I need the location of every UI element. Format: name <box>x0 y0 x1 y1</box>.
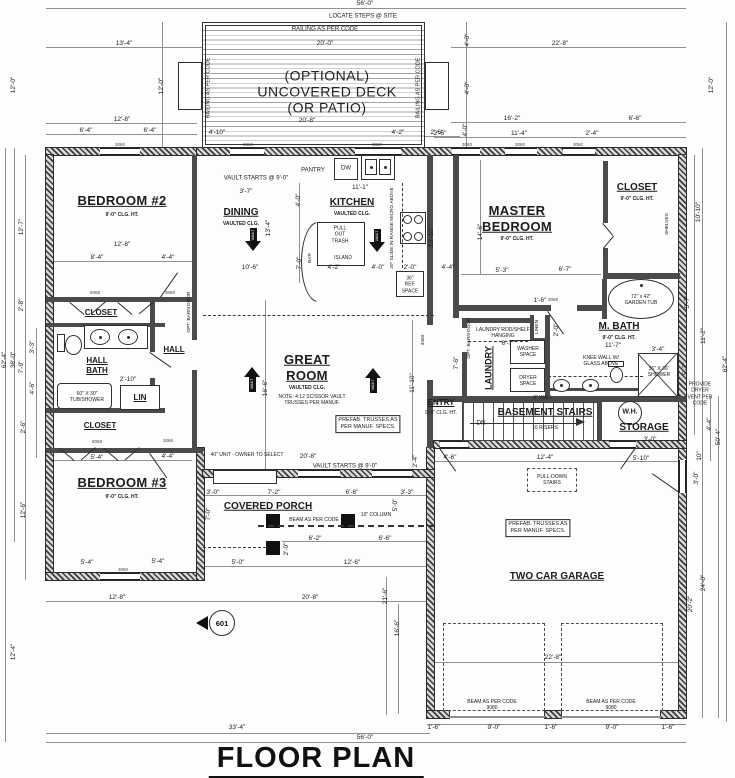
exterior-wall <box>427 448 434 718</box>
marker-arrow-icon <box>196 616 208 630</box>
sink-drain <box>560 384 563 387</box>
vault-arrow-label: VAULT <box>251 230 255 241</box>
dim-line <box>5 148 6 742</box>
dim-label: 4'-4" <box>162 453 175 461</box>
dim-label: 2'-6" <box>434 130 447 138</box>
room-label-closet: CLOSET <box>85 308 117 318</box>
dim-line <box>46 8 686 9</box>
dim-label: 22'-8" <box>545 654 562 662</box>
dim-label: 5'-7" <box>682 363 690 376</box>
dim-label: 10'-10" <box>695 202 703 222</box>
window <box>298 470 340 477</box>
dim-label: 2'-10" <box>120 376 137 384</box>
dim-label: 13'-4" <box>116 40 133 48</box>
dim-label: 9'-0" <box>488 724 501 732</box>
dim-label: 20'-0" <box>317 40 334 48</box>
room-label-hall-bath: HALL BATH <box>86 356 108 376</box>
dishwasher-label: DW <box>341 165 351 173</box>
burner-icon <box>414 215 423 224</box>
window <box>230 148 264 155</box>
room-label-basement-stairs: BASEMENT STAIRS <box>498 407 593 420</box>
dim-label: 11'-10" <box>409 373 417 393</box>
room-label-garage: TWO CAR GARAGE <box>510 571 604 584</box>
vault-arrow-icon <box>245 241 261 251</box>
dim-label: 4'-0" <box>464 34 472 47</box>
dim-line <box>461 274 601 275</box>
pull-down-stairs-label: PULL-DOWN STAIRS <box>537 474 567 487</box>
washer-label: WASHER SPACE <box>517 346 539 359</box>
dim-label: 6'-2" <box>309 535 322 543</box>
dim-label: 4'-6" <box>444 454 457 462</box>
window-tag: 3060 <box>573 142 583 148</box>
dim-label: 4'-4" <box>706 418 714 431</box>
prefab-truss-note: PREFAB. TRUSSES AS PER MANUF. SPECS. <box>335 415 400 433</box>
dim-label: 1'-6" <box>662 724 675 732</box>
window <box>100 148 140 155</box>
railing-note: RAILING AS PER CODE <box>206 58 213 119</box>
laundry-rod-note: LAUNDRY ROD/SHELF HANGING <box>476 327 530 340</box>
barn-door-note: OPT. BARN DOOR <box>467 317 473 358</box>
annotation: VAULTED CLG. <box>289 385 325 391</box>
dim-label: 11'-2" <box>700 328 708 344</box>
railing-note: RAILING AS PER CODE <box>416 58 423 119</box>
window <box>505 148 537 155</box>
dim-label: 38'-0" <box>10 352 18 369</box>
shower-label: 36" X 36" SHOWER <box>648 366 671 379</box>
interior-wall <box>192 370 197 448</box>
dim-label: 2'-0" <box>553 324 561 337</box>
dim-label: 5'-4" <box>91 454 104 462</box>
down-label: DN <box>477 420 486 428</box>
island-label: ISLAND <box>334 255 352 261</box>
dim-label: 7'-2" <box>268 489 281 497</box>
dim-label: 6'-6" <box>379 535 392 543</box>
stair-direction-line <box>470 423 578 424</box>
dim-label: 6'-6" <box>346 489 359 497</box>
dim-label: 62'-4" <box>722 356 730 373</box>
dim-line <box>434 137 686 138</box>
dim-label: 6'-7" <box>559 266 572 274</box>
dim-label: 16'-6" <box>262 380 270 397</box>
dim-label: 6'-4" <box>144 127 157 135</box>
annotation: 9'-0" CLG. HT. <box>500 236 533 242</box>
interior-wall <box>462 352 467 398</box>
door-tag: 3068 <box>243 142 253 148</box>
dim-label: 5'-4" <box>152 558 165 566</box>
door-tag: 3068 <box>165 290 175 296</box>
closet-door-leaf <box>117 302 132 315</box>
annotation: 9'-0" CLG. HT. <box>602 335 635 341</box>
knee-wall-note: KNEE WALL W/ GLASS ABOVE <box>583 355 619 368</box>
burner-icon <box>414 232 423 241</box>
porch-column <box>266 541 280 555</box>
garden-tub-label: 72" x 42" GARDEN TUB <box>625 294 658 307</box>
vault-note: VAULT STARTS @ 9'-0" <box>313 463 378 471</box>
dim-label: 12'-8" <box>114 241 131 249</box>
dim-label: 11'-7" <box>605 342 621 350</box>
dim-line <box>46 134 197 135</box>
closet-door-leaf <box>603 236 614 249</box>
dim-label: 12'-4" <box>10 644 18 661</box>
dim-label: 33'-4" <box>229 724 246 732</box>
railing-note: RAILING AS PER CODE <box>292 26 358 34</box>
dim-label: 4'-10" <box>209 129 226 137</box>
dim-label: 2'-4" <box>412 455 420 468</box>
ceiling-break-line <box>203 315 434 316</box>
dim-label: 1'-6" <box>545 724 558 732</box>
dim-line <box>702 148 703 718</box>
room-label-hall: HALL <box>163 345 184 355</box>
bar-label: BAR <box>308 253 314 263</box>
dim-line <box>451 47 686 48</box>
dim-label: 12'-0" <box>708 77 716 94</box>
annotation: 9'-0" CLG. HT. <box>105 494 138 500</box>
sink-drain <box>99 336 102 339</box>
dim-label: 3'-0" <box>644 436 657 444</box>
dim-label: 3'-7" <box>240 188 253 196</box>
vanity-counter-line <box>548 376 643 377</box>
window-tag: 3060 <box>515 142 525 148</box>
door-tag: 5068 <box>90 290 100 296</box>
page-title: FLOOR PLAN <box>209 742 424 778</box>
exterior-wall <box>661 711 686 718</box>
door-opening <box>610 441 636 448</box>
door-tag: 5068 <box>92 439 102 445</box>
dim-label: 4'-0" <box>372 264 385 272</box>
burner-icon <box>403 232 412 241</box>
dim-label: 20'-8" <box>299 117 316 125</box>
exterior-wall <box>427 711 449 718</box>
interior-wall <box>577 305 603 311</box>
vault-arrow-icon <box>369 242 385 252</box>
wall-note: 6" WALL <box>533 395 552 401</box>
floor-plan-canvas: 601 56'-0"LOCATE STEPS @ SITERAILING AS … <box>0 0 735 778</box>
shelves-label: SHELVES <box>665 213 671 235</box>
dim-label: 6'-7" <box>502 340 515 348</box>
dim-line <box>451 122 686 123</box>
dim-label: 6'-4" <box>80 127 93 135</box>
dim-label: 4'-0" <box>295 194 303 207</box>
dim-label: 3'-0" <box>207 489 220 497</box>
dim-label: 2'-0" <box>283 543 291 556</box>
interior-wall <box>545 315 550 398</box>
dim-label: 12'-4" <box>537 454 554 462</box>
door-tag: 3068 <box>548 297 558 303</box>
dim-label: 1'-6" <box>534 297 547 305</box>
deck-label: (OPTIONAL) <box>284 67 369 85</box>
annotation: 9'-0" CLG. HT. <box>620 196 653 202</box>
dim-line <box>46 601 431 602</box>
room-label-closet: CLOSET <box>84 421 116 431</box>
dim-label: 5'-7" <box>684 296 692 309</box>
dim-label: 56'-0" <box>357 0 374 8</box>
dim-label: 3'-4" <box>652 346 665 354</box>
window-tag: 3460 <box>421 335 427 346</box>
dim-label: 20'-2" <box>687 596 695 613</box>
room-label-dining: DINING <box>224 207 259 220</box>
dim-label: 24'-0" <box>700 575 708 592</box>
dim-label: 5'-0" <box>392 499 400 512</box>
room-label-great-room: GREAT ROOM <box>284 352 330 385</box>
beam-line <box>258 525 434 527</box>
dim-label: 4'-6" <box>29 382 37 395</box>
toilet <box>65 335 82 355</box>
upper-cabinet-line <box>402 183 403 268</box>
dim-label: 20'-8" <box>302 594 319 602</box>
steps-note: LOCATE STEPS @ SITE <box>329 13 397 21</box>
interior-wall <box>150 302 155 352</box>
room-label-master-bedroom: MASTER BEDROOM <box>482 203 552 236</box>
toilet <box>610 367 623 383</box>
dim-label: 16'-2" <box>504 115 521 123</box>
dim-label: 4'-2" <box>392 129 405 137</box>
room-label-linen: LINEN <box>535 320 541 334</box>
dim-label: 16'-6" <box>394 620 402 637</box>
exterior-wall <box>545 711 561 718</box>
dim-label: 1'-6" <box>428 724 441 732</box>
beam-note: BEAM AS PER CODE 9080 <box>467 699 516 712</box>
dim-label: 4'-4" <box>162 254 175 262</box>
dryer-label: DRYER SPACE <box>519 375 536 388</box>
dim-label: 11'-1" <box>352 184 368 192</box>
window-tag: 3060 <box>462 142 472 148</box>
fireplace-note: 40" UNIT - OWNER TO SELECT <box>211 452 284 458</box>
dim-label: 5'-4" <box>81 559 94 567</box>
room-label-master-closet: CLOSET <box>617 182 658 195</box>
tub-note: 60" X 30" TUB/SHOWER <box>70 391 104 404</box>
dim-label: 5'-0" <box>232 559 245 567</box>
dim-label: 4'-0" <box>464 82 472 95</box>
dim-label: 21'-6" <box>382 588 390 605</box>
dim-label: 56'-0" <box>357 734 374 742</box>
range-note: 30" SLIDE IN RANGE MICRO ABOVE <box>390 187 396 269</box>
annotation: 9'-0" CLG. HT. <box>105 212 138 218</box>
dim-label: 62'-4" <box>1 352 9 369</box>
window <box>100 573 140 580</box>
dryer-vent-note: PROVIDE DRYER VENT PER CODE <box>683 382 718 407</box>
room-label-covered-porch: COVERED PORCH <box>224 501 312 514</box>
dim-label: 2'-0" <box>404 264 417 272</box>
window <box>355 148 401 155</box>
tub-faucet <box>640 284 643 287</box>
exterior-wall <box>197 448 204 580</box>
column-note: 10" COLUMN <box>361 512 391 518</box>
section-marker-number: 601 <box>209 610 235 636</box>
room-label-bedroom2: BEDROOM #2 <box>78 193 167 209</box>
dim-label: 12'-6" <box>20 502 28 519</box>
dim-label: 14'-6" <box>477 224 485 241</box>
door-opening <box>440 441 468 448</box>
dim-label: 2'-6" <box>20 421 28 434</box>
dim-label: 12'-8" <box>114 116 131 124</box>
risers-note: 16 RISERS <box>532 425 558 431</box>
prefab-truss-note: PREFAB. TRUSSES AS PER MANUF. SPECS. <box>505 519 570 537</box>
door-tag: 3068 <box>163 438 173 444</box>
dim-label: 10'-6" <box>242 264 259 272</box>
sink-drain <box>589 384 592 387</box>
dim-label: 9'-0" <box>606 724 619 732</box>
dim-label: 12'-8" <box>109 594 126 602</box>
dim-label: 2'-8" <box>18 299 26 312</box>
interior-wall <box>192 155 197 300</box>
dim-label: 3'-0" <box>693 472 701 485</box>
room-label-entry: ENTRY <box>428 398 455 408</box>
interior-wall <box>46 297 197 302</box>
water-heater-label: W.H. <box>622 409 637 418</box>
room-label-laundry: LAUNDRY <box>483 346 494 390</box>
vault-arrow-icon <box>365 368 381 378</box>
truss-note: NOTE: 4:12 SCISSOR VAULT TRUSSES PER MAN… <box>278 394 345 407</box>
porch-edge-line <box>203 547 266 548</box>
beam-note: BEAM AS PER CODE 9080 <box>586 699 635 712</box>
annotation: 9'-0" CLG. HT. <box>425 410 457 416</box>
window <box>372 470 412 477</box>
dim-line <box>14 148 15 542</box>
laundry-rod-line <box>468 341 528 342</box>
dim-label: 22'-8" <box>552 40 569 48</box>
interior-wall <box>603 161 608 223</box>
dim-label: 3'-3" <box>29 341 37 354</box>
deck-label: UNCOVERED DECK <box>257 83 396 101</box>
dim-label: 7'-0" <box>205 508 213 521</box>
room-label-master-bath: M. BATH <box>599 321 640 334</box>
dim-label: 4'-4" <box>442 264 455 272</box>
room-label-bedroom3: BEDROOM #3 <box>78 475 167 491</box>
dim-label: 13'-4" <box>265 220 273 237</box>
exterior-wall <box>679 155 686 718</box>
deck-label: (OR PATIO) <box>287 99 366 117</box>
closet-door-leaf <box>69 302 84 315</box>
sink-drain <box>370 166 373 169</box>
dim-label: 8'-4" <box>91 254 104 262</box>
window-tag: 3060 <box>115 142 125 148</box>
dim-label: 4'-0" <box>462 124 470 137</box>
dim-label: 13'-10" <box>428 227 436 247</box>
dim-label: 11'-4" <box>511 130 527 138</box>
dim-line <box>282 541 427 542</box>
toilet-tank <box>57 334 65 352</box>
dim-label: 2'-4" <box>586 130 599 138</box>
closet-door-leaf <box>602 223 613 236</box>
dim-label: 12'-6" <box>344 559 361 567</box>
room-label-kitchen: KITCHEN <box>330 197 374 210</box>
dim-label: 12'-7" <box>18 219 26 236</box>
deck-landing <box>178 62 202 110</box>
room-label-storage: STORAGE <box>619 422 668 435</box>
dim-label: 12'-0" <box>158 78 166 95</box>
exterior-wall <box>46 155 53 580</box>
deck-landing <box>425 62 449 110</box>
garage-door-sill <box>449 716 545 718</box>
vault-arrow-label: VAULT <box>371 380 375 391</box>
dim-label: 6'-6" <box>629 115 642 123</box>
dim-label: 3'-3" <box>401 489 414 497</box>
sink-drain <box>127 336 130 339</box>
dim-label: 50'-4" <box>715 429 723 446</box>
dim-label: 7'-9" <box>18 361 26 374</box>
interior-wall <box>602 279 607 319</box>
vault-arrow-icon <box>244 367 260 377</box>
dim-line <box>480 160 481 274</box>
annotation: VAULTED CLG. <box>334 211 370 217</box>
garage-door-sill <box>561 716 661 718</box>
dim-label: 20'-8" <box>300 453 317 461</box>
beam-note: BEAM AS PER CODE <box>289 517 338 523</box>
door-leaf <box>652 473 680 493</box>
fireplace-unit <box>213 470 277 484</box>
interior-wall <box>453 155 459 318</box>
window-tag: 8030 <box>372 142 382 148</box>
dim-label: 5'-10" <box>633 455 650 463</box>
annotation: VAULTED CLG. <box>223 221 259 227</box>
vault-note: VAULT STARTS @ 9'-0" <box>224 175 289 183</box>
trash-note: PULL OUT TRASH <box>332 226 349 245</box>
dim-label: 12'-0" <box>10 77 18 94</box>
door-opening <box>679 460 686 493</box>
ref-note: 36" REF. SPACE <box>402 276 419 295</box>
dim-label: 10" <box>696 451 704 461</box>
burner-icon <box>403 215 412 224</box>
room-label-linen: LIN <box>134 393 147 403</box>
dim-line <box>203 495 427 496</box>
interior-wall <box>46 448 203 453</box>
barn-door-note: OPT. BARN DOOR <box>187 291 193 332</box>
dim-label: 5'-3" <box>496 267 509 275</box>
interior-wall <box>453 305 551 311</box>
pantry-label: PANTRY <box>301 167 325 175</box>
sink-drain <box>384 166 387 169</box>
window <box>452 148 480 155</box>
dim-label: 7'-6" <box>453 357 461 370</box>
window <box>563 148 595 155</box>
vault-arrow-label: VAULT <box>250 379 254 390</box>
dim-label: 7'-0" <box>296 257 304 270</box>
vault-arrow-label: VAULT <box>375 231 379 242</box>
window-tag: 3060 <box>118 567 128 573</box>
dim-label: 4'-2" <box>328 264 341 272</box>
